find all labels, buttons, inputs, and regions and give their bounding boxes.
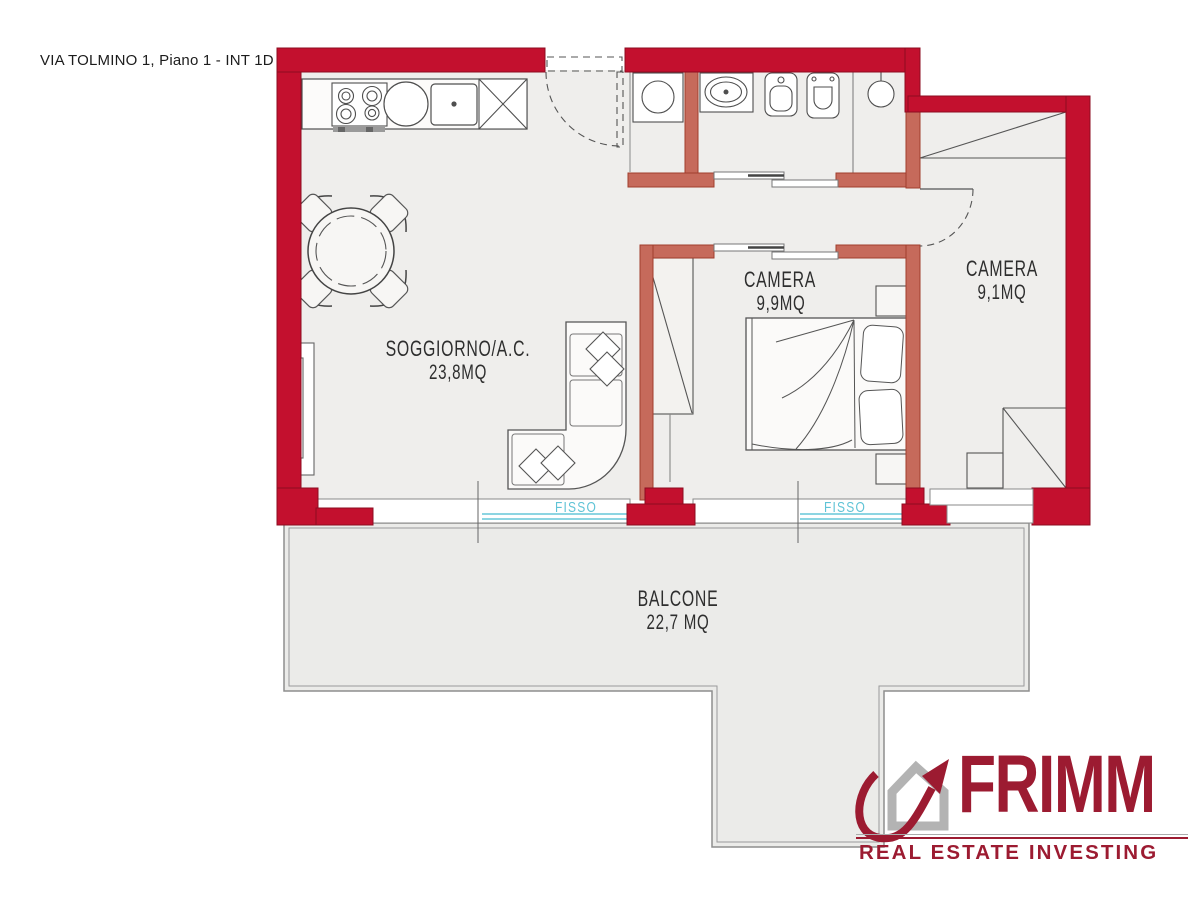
room-label-soggiorno: SOGGIORNO/A.C. (386, 338, 531, 360)
window-label-fisso-1: FISSO (555, 500, 597, 515)
dining-table (308, 208, 394, 294)
kitchen-sink-round-icon (384, 82, 428, 126)
frimm-logo: FRIMM REAL ESTATE INVESTING (852, 750, 1192, 880)
room-area-balcone: 22,7 MQ (646, 612, 709, 633)
toilet-icon (807, 73, 839, 118)
room-area-camera-2: 9,1MQ (978, 282, 1027, 303)
room-label-balcone: BALCONE (638, 588, 719, 610)
floorplan-page: VIA TOLMINO 1, Piano 1 - INT 1D (0, 0, 1200, 900)
bathroom-sink-icon (700, 73, 753, 112)
room-label-camera-1: CAMERA (744, 269, 816, 291)
kitchen-sink-square-icon (431, 84, 477, 125)
stove-icon (332, 83, 387, 132)
fridge-icon (479, 79, 527, 129)
logo-rule-grey (856, 834, 1188, 835)
room-area-camera-1: 9,9MQ (757, 293, 806, 314)
logo-tagline-text: REAL ESTATE INVESTING (859, 843, 1158, 864)
double-bed (746, 318, 908, 450)
washing-machine-icon (633, 73, 683, 122)
logo-rule-red (856, 837, 1188, 839)
logo-brand-text: FRIMM (958, 744, 1155, 826)
dining-set (292, 192, 410, 310)
window-label-fisso-2: FISSO (824, 500, 866, 515)
bidet-icon (765, 73, 797, 116)
room-area-soggiorno: 23,8MQ (429, 362, 487, 383)
room-label-camera-2: CAMERA (966, 258, 1038, 280)
